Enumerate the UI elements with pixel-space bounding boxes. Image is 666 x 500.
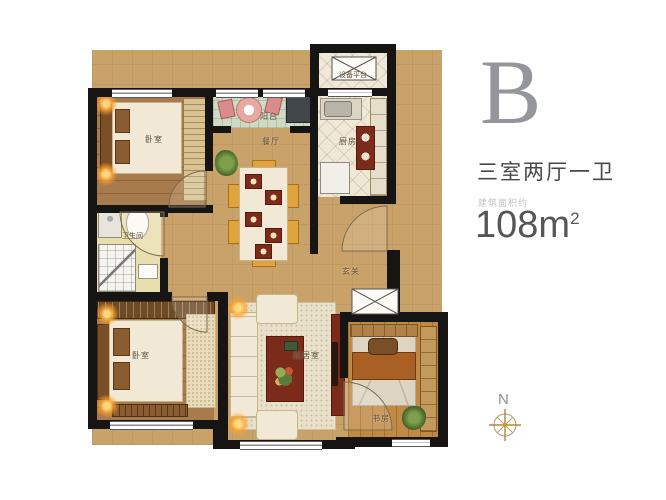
label-kitchen: 厨房: [339, 136, 357, 147]
bed-bottom-pillow: [113, 362, 130, 390]
bed-top-pillow: [115, 109, 130, 133]
dining-placemat: [265, 228, 282, 243]
bathroom-sink: [138, 264, 158, 279]
label-balcony: 阳台: [260, 111, 278, 122]
coffee-table-flowers: [272, 362, 296, 388]
label-bedroom-bottom: 卧室: [132, 350, 150, 361]
area-value: 108m2: [475, 204, 580, 247]
window: [328, 89, 372, 97]
lamp-glow: [95, 302, 119, 326]
bed-bottom-pillow: [113, 328, 130, 356]
window: [110, 421, 193, 430]
kitchen-stove: [356, 126, 375, 170]
wall: [213, 126, 231, 133]
label-bathroom: 卫生间: [122, 231, 143, 241]
dining-plant: [215, 150, 238, 176]
wall: [340, 196, 387, 204]
window: [392, 439, 430, 447]
balcony-cabinet: [286, 96, 311, 123]
bed-top-pillow: [115, 140, 130, 164]
label-living: 起居室: [293, 350, 320, 361]
dining-placemat: [245, 212, 262, 227]
wall: [340, 312, 448, 322]
armchair-top: [256, 294, 298, 324]
wall: [438, 312, 448, 447]
window: [216, 89, 258, 98]
unit-letter: B: [480, 46, 541, 138]
wall: [207, 292, 228, 301]
wall: [160, 205, 168, 217]
bedroom-rug: [186, 314, 216, 408]
window: [112, 89, 172, 98]
kitchen-sink: [324, 101, 352, 117]
study-chair: [368, 338, 398, 355]
balcony-table: [236, 97, 262, 123]
sofa-main: [230, 312, 258, 418]
north-label: N: [498, 391, 509, 408]
wall: [387, 44, 396, 204]
wall: [310, 44, 396, 53]
wall: [387, 250, 400, 312]
window: [263, 89, 305, 98]
study-desk: [352, 352, 416, 380]
wall: [88, 205, 168, 213]
area-unit: m: [538, 204, 570, 246]
bedroom-bench: [112, 404, 188, 417]
dining-placemat: [255, 244, 272, 259]
window: [240, 441, 322, 450]
dining-placemat: [245, 174, 262, 189]
wall: [205, 88, 213, 171]
bathroom-shower: [98, 244, 136, 292]
label-entry: 玄关: [342, 266, 360, 277]
unit-type-text: 三室两厅一卫: [477, 156, 615, 186]
label-study: 书房: [372, 413, 390, 424]
lamp-glow: [226, 296, 250, 320]
area-exponent: 2: [570, 209, 579, 228]
floor-plan: 卧室 阳台 餐厅 厨房 设备平台 卫生间 卧室 起居室 玄关 书房: [0, 0, 460, 500]
compass-rose-icon: [487, 407, 523, 443]
floorplan-page: 卧室 阳台 餐厅 厨房 设备平台 卫生间 卧室 起居室 玄关 书房 B 三室两厅…: [0, 0, 666, 500]
label-dining: 餐厅: [262, 136, 280, 147]
wall: [310, 96, 318, 254]
lamp-glow: [94, 162, 118, 186]
dining-placemat: [265, 190, 282, 205]
armchair-bottom: [256, 410, 298, 440]
wall: [160, 258, 168, 300]
kitchen-fridge: [320, 162, 350, 194]
lamp-glow: [226, 412, 250, 436]
wall: [290, 126, 310, 133]
tv: [332, 342, 338, 386]
area-number: 108: [475, 204, 538, 246]
wall: [88, 88, 97, 429]
wardrobe-top-bedroom: [183, 98, 207, 202]
lamp-glow: [95, 394, 119, 418]
label-bedroom-top: 卧室: [145, 134, 163, 145]
wall: [340, 322, 348, 378]
study-shelf-top: [350, 324, 418, 337]
label-equipment-platform: 设备平台: [339, 70, 367, 80]
